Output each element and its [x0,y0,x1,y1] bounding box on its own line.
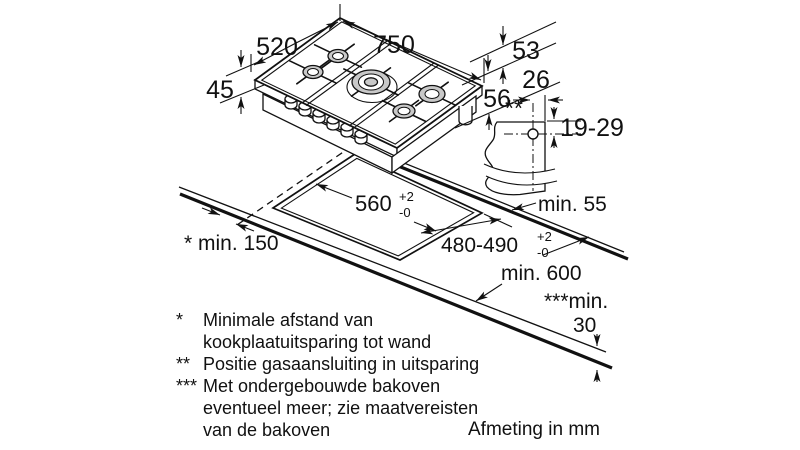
footnote-3-line-1: Met ondergebouwde bakoven [203,375,478,397]
label-min-side: * min. 150 [184,232,279,255]
label-gas-height-range: 19-29 [560,114,624,142]
footnote-1-line-2: kookplaatuitsparing tot wand [203,331,431,353]
label-cutout-width: 560 [355,191,392,216]
footnote-2: ** Positie gasaansluiting in uitsparing [176,353,479,375]
footnote-3-line-2: eventueel meer; zie maatvereisten [203,397,478,419]
footnote-3: *** Met ondergebouwde bakoven eventueel … [176,375,479,441]
label-gas-offset: 26 [522,66,550,94]
footnote-1-marker: * [176,309,203,331]
label-hob-depth: 520 [256,33,298,61]
label-cutout-width-tol-minus: -0 [399,205,411,220]
footnote-1: * Minimale afstand van kookplaatuitspari… [176,309,479,353]
label-hob-width: 750 [373,31,415,59]
label-min-back: min. 55 [538,193,607,216]
label-edge-height: 53 [512,37,540,65]
label-cutout-depth-tol-minus: -0 [537,245,549,260]
footnote-2-line-1: Positie gasaansluiting in uitsparing [203,353,479,375]
installation-diagram: 520 750 53 45 56 26 ** 19-29 min. 55 560… [0,0,800,450]
label-gas-marker: ** [505,95,523,121]
footnote-3-text: Met ondergebouwde bakoven eventueel meer… [203,375,478,441]
label-tray-height: 45 [206,76,234,104]
label-cutout-width-tol-plus: +2 [399,189,414,204]
gas-inlet-point [528,129,538,139]
units-caption: Afmeting in mm [468,419,600,441]
label-cutout-depth-tol-plus: +2 [537,229,552,244]
footnote-3-line-3: van de bakoven [203,419,478,441]
footnote-2-text: Positie gasaansluiting in uitsparing [203,353,479,375]
footnote-3-marker: *** [176,375,203,397]
footnote-2-marker: ** [176,353,203,375]
label-min-counter-depth: min. 600 [501,262,582,285]
label-cutout-depth: 480-490 [441,234,518,257]
footnotes: * Minimale afstand van kookplaatuitspari… [176,309,479,441]
label-min-thickness-value: 30 [573,314,596,337]
footnote-1-text: Minimale afstand van kookplaatuitsparing… [203,309,431,353]
label-min-thickness: ***min. [544,290,608,313]
footnote-1-line-1: Minimale afstand van [203,309,431,331]
